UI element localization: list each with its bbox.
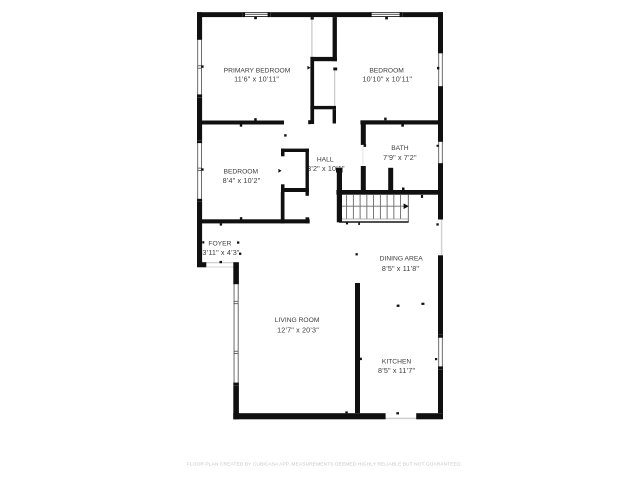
- svg-text:8’5" x 11’7": 8’5" x 11’7": [378, 366, 415, 375]
- svg-text:LIVING ROOM: LIVING ROOM: [275, 317, 320, 324]
- svg-text:KITCHEN: KITCHEN: [382, 359, 412, 366]
- svg-text:12’7" x 20’3": 12’7" x 20’3": [277, 326, 319, 335]
- svg-text:8’4" x 10’2": 8’4" x 10’2": [223, 176, 261, 185]
- svg-text:11’6" x 10’11": 11’6" x 10’11": [234, 75, 279, 84]
- svg-text:3’11" x 4’3": 3’11" x 4’3": [202, 248, 239, 257]
- svg-text:BEDROOM: BEDROOM: [224, 168, 259, 175]
- svg-text:10’10" x 10’11": 10’10" x 10’11": [363, 75, 413, 84]
- svg-text:BATH: BATH: [391, 145, 409, 152]
- svg-text:FOYER: FOYER: [208, 241, 231, 248]
- svg-text:FLOOR PLAN CREATED BY CUBICASA: FLOOR PLAN CREATED BY CUBICASA APP. MEAS…: [187, 461, 462, 467]
- svg-text:BEDROOM: BEDROOM: [369, 67, 404, 74]
- svg-text:7’9" x 7’2": 7’9" x 7’2": [383, 153, 417, 162]
- svg-text:8’5" x 11’8": 8’5" x 11’8": [382, 264, 419, 273]
- svg-text:HALL: HALL: [317, 157, 334, 164]
- svg-text:PRIMARY BEDROOM: PRIMARY BEDROOM: [224, 67, 291, 74]
- svg-text:DINING AREA: DINING AREA: [380, 256, 424, 263]
